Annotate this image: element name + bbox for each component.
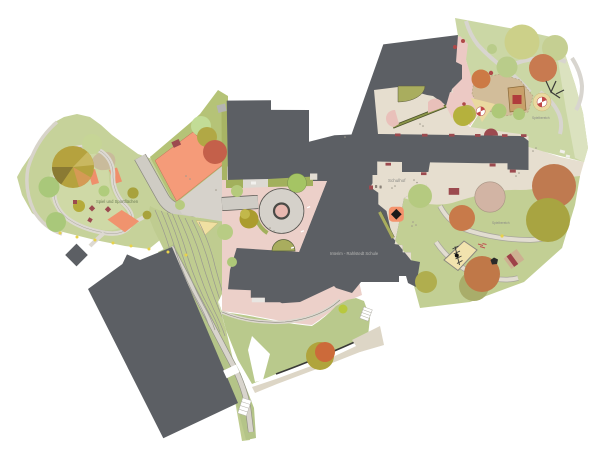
svg-text:Schulhof: Schulhof (388, 178, 406, 183)
svg-text:Spielbereich: Spielbereich (532, 116, 550, 120)
svg-text:Spiel und Sportflächen: Spiel und Sportflächen (96, 199, 139, 204)
svg-text:Spielbereich: Spielbereich (492, 221, 510, 225)
svg-text:Interim - Rahlstedt Schule: Interim - Rahlstedt Schule (330, 251, 379, 256)
